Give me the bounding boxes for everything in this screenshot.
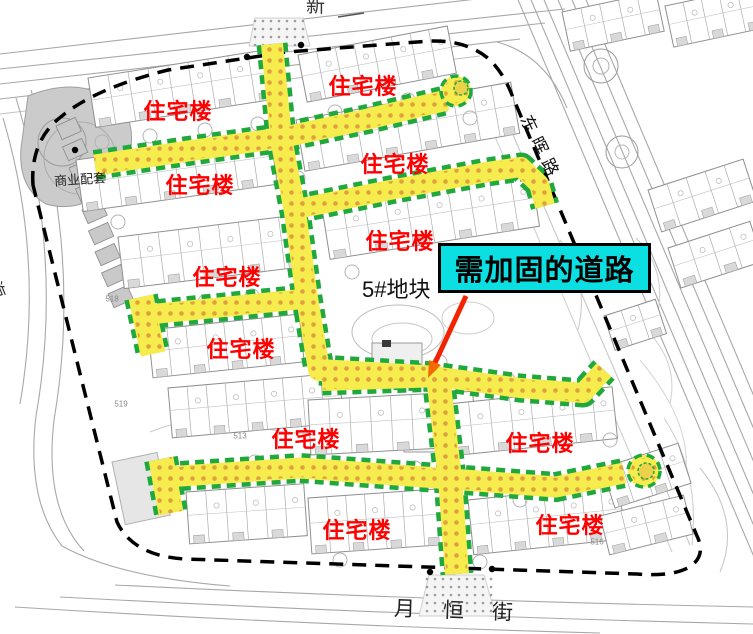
residential-building-label: 住宅楼 xyxy=(206,332,275,364)
residential-building-label: 住宅楼 xyxy=(505,426,574,458)
building-number-label: 519 xyxy=(114,400,127,409)
plot-number-label: 5#地块 xyxy=(362,272,430,304)
building-row xyxy=(668,221,753,288)
site-plan-page: 5#地块 需加固的道路 东晖路 滨海 月恒街 新 商业配套 住宅楼住宅楼住宅楼住… xyxy=(0,0,753,634)
residential-building-label: 住宅楼 xyxy=(360,147,429,179)
residential-building-label: 住宅楼 xyxy=(365,224,434,256)
building-row xyxy=(665,0,753,47)
building-number-label: 518 xyxy=(105,295,118,304)
residential-building-label: 住宅楼 xyxy=(322,513,391,545)
callout-roads-to-reinforce: 需加固的道路 xyxy=(438,243,651,293)
building-row xyxy=(186,484,307,544)
residential-building-label: 住宅楼 xyxy=(165,168,234,200)
building-row xyxy=(648,159,753,232)
building-number-label: 513 xyxy=(233,432,246,441)
residential-building-label: 住宅楼 xyxy=(271,422,340,454)
street-name-top-partial: 新 xyxy=(306,0,325,18)
residential-building-label: 住宅楼 xyxy=(192,260,261,292)
building-number-label: 516 xyxy=(590,538,603,547)
residential-building-label: 住宅楼 xyxy=(143,94,212,126)
commercial-area-label: 商业配套 xyxy=(53,167,106,190)
building-row xyxy=(562,0,664,51)
residential-building-label: 住宅楼 xyxy=(535,508,604,540)
residential-building-label: 住宅楼 xyxy=(328,69,397,101)
street-name-yueheng-street: 月恒街 xyxy=(394,592,542,627)
